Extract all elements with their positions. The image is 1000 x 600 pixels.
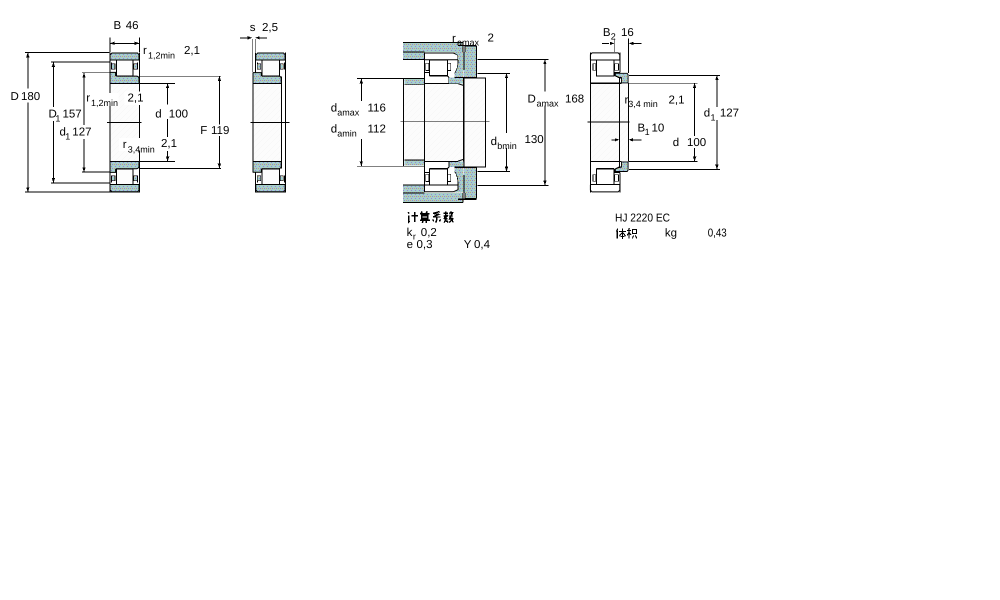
svg-text:d: d <box>704 108 710 120</box>
svg-text:1,2min: 1,2min <box>148 51 175 61</box>
svg-text:B: B <box>114 20 122 32</box>
svg-text:r: r <box>86 93 90 105</box>
svg-text:s: s <box>250 22 256 34</box>
svg-text:46: 46 <box>126 20 139 32</box>
svg-text:amax: amax <box>457 38 480 48</box>
svg-text:168: 168 <box>565 94 584 106</box>
svg-text:2,1: 2,1 <box>669 95 685 107</box>
svg-text:0,43: 0,43 <box>708 228 727 240</box>
svg-text:0,2: 0,2 <box>421 227 437 239</box>
svg-text:100: 100 <box>169 109 188 121</box>
svg-text:2,5: 2,5 <box>262 22 278 34</box>
svg-text:2,1: 2,1 <box>161 138 177 150</box>
svg-text:112: 112 <box>368 123 386 135</box>
svg-text:HJ 2220 EC: HJ 2220 EC <box>615 213 670 225</box>
svg-text:d: d <box>491 136 497 148</box>
svg-text:130: 130 <box>525 134 544 146</box>
svg-text:119: 119 <box>211 125 229 137</box>
svg-text:3,4min: 3,4min <box>128 145 155 155</box>
svg-text:2,1: 2,1 <box>184 45 200 57</box>
svg-text:127: 127 <box>720 108 739 120</box>
svg-text:d: d <box>155 109 161 121</box>
svg-text:bmin: bmin <box>497 141 517 151</box>
svg-text:2: 2 <box>488 33 494 45</box>
svg-text:1: 1 <box>65 132 70 142</box>
svg-text:B: B <box>603 27 611 39</box>
svg-text:e: e <box>407 239 413 251</box>
svg-text:10: 10 <box>652 123 665 135</box>
svg-text:100: 100 <box>687 137 706 149</box>
svg-text:r: r <box>452 33 456 45</box>
svg-text:D: D <box>528 94 536 106</box>
svg-text:r: r <box>123 139 127 151</box>
svg-text:157: 157 <box>63 109 82 121</box>
svg-text:amax: amax <box>537 99 560 109</box>
svg-text:amax: amax <box>337 107 360 117</box>
svg-text:2: 2 <box>611 32 616 42</box>
svg-text:1,2min: 1,2min <box>91 98 118 108</box>
svg-text:d: d <box>673 137 679 149</box>
svg-text:16: 16 <box>621 27 634 39</box>
svg-text:180: 180 <box>21 91 40 103</box>
svg-text:1: 1 <box>645 127 650 137</box>
svg-text:116: 116 <box>368 102 386 114</box>
svg-text:kg: kg <box>665 228 677 240</box>
svg-text:0,3: 0,3 <box>417 239 433 251</box>
svg-text:Y: Y <box>464 239 472 251</box>
svg-text:D: D <box>11 91 19 103</box>
svg-text:d: d <box>331 123 337 135</box>
svg-text:d: d <box>331 102 337 114</box>
svg-text:1: 1 <box>55 114 60 124</box>
svg-text:r: r <box>143 45 147 57</box>
svg-text:2,1: 2,1 <box>128 93 144 105</box>
svg-text:k: k <box>407 227 413 239</box>
svg-text:amin: amin <box>337 128 357 138</box>
svg-text:0,4: 0,4 <box>474 239 491 251</box>
svg-text:r: r <box>413 232 416 242</box>
svg-text:1: 1 <box>711 113 716 123</box>
svg-text:127: 127 <box>72 127 91 139</box>
svg-text:F: F <box>200 125 207 137</box>
svg-text:3,4 min: 3,4 min <box>628 99 658 109</box>
